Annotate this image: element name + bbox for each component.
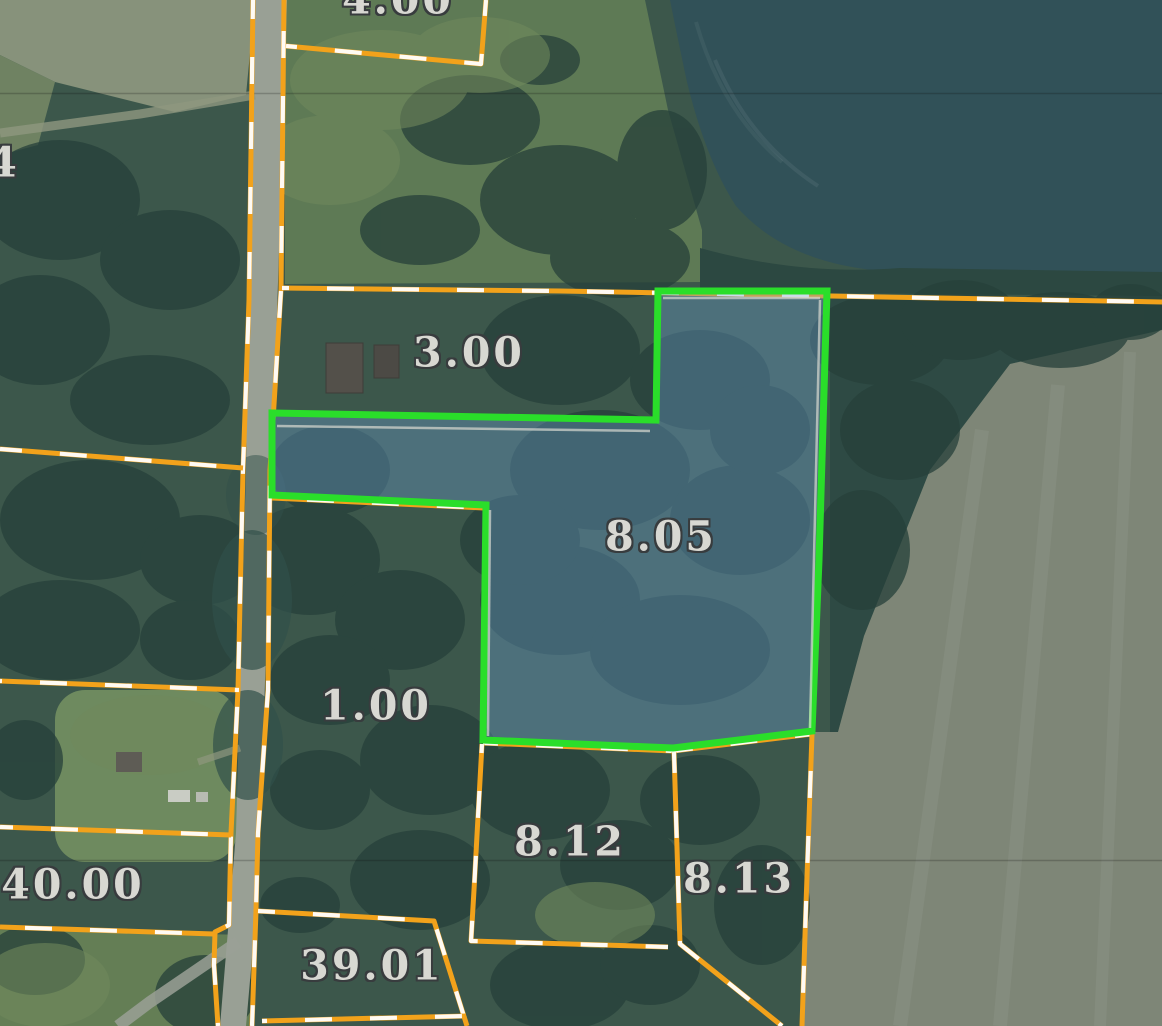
building: [326, 343, 363, 393]
building: [374, 345, 399, 378]
building: [116, 752, 142, 772]
building: [196, 792, 208, 802]
map-canvas[interactable]: 4.0043.008.051.008.128.1340.0039.01: [0, 0, 1162, 1026]
building: [168, 790, 190, 802]
